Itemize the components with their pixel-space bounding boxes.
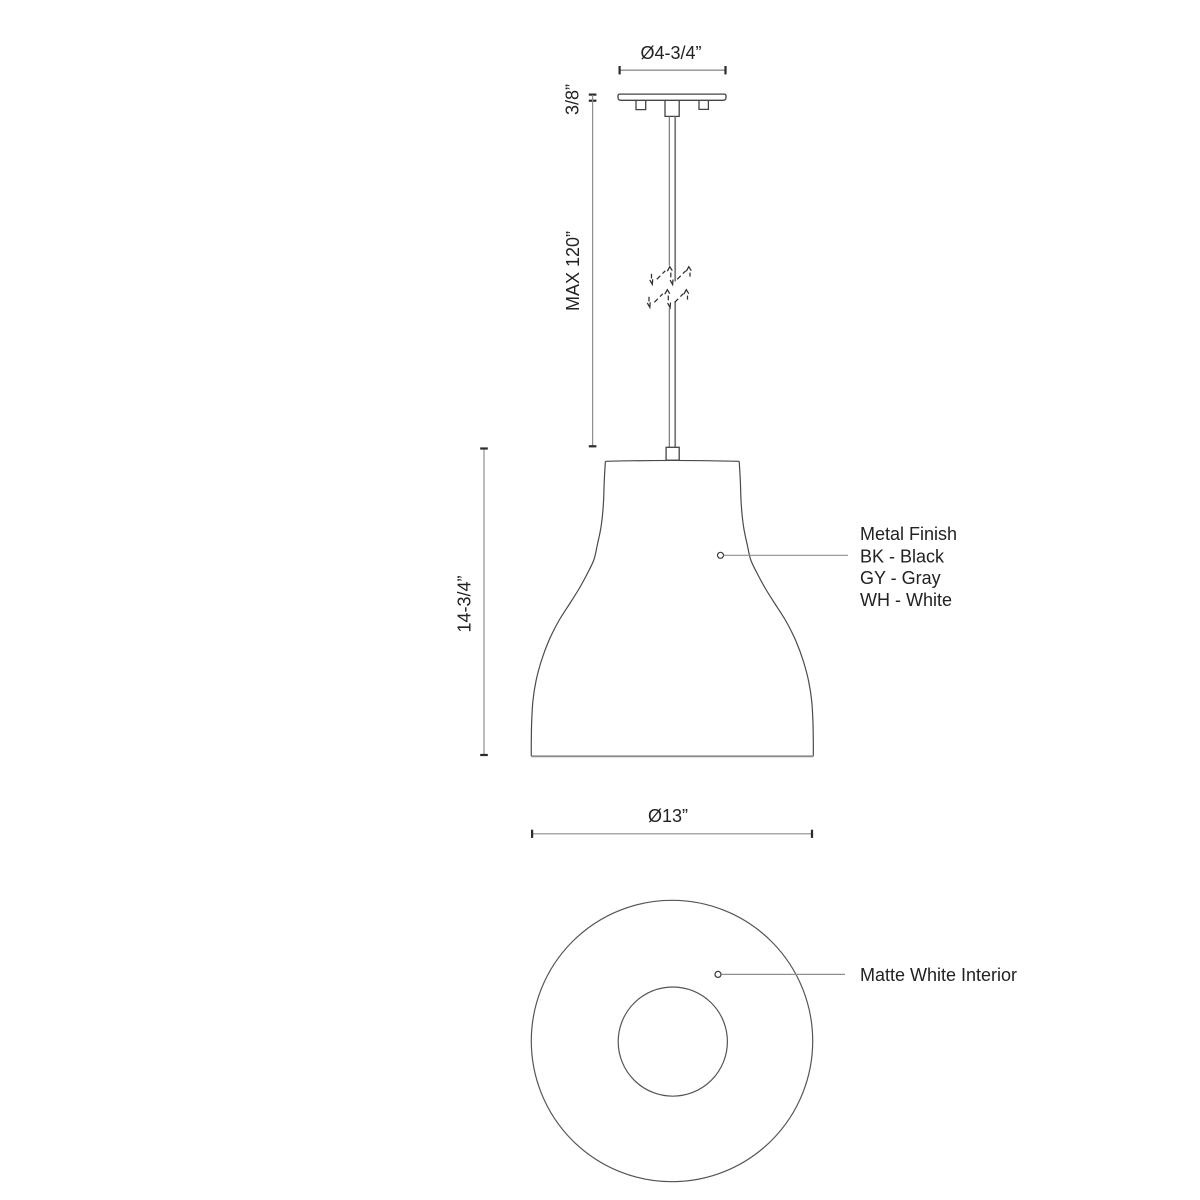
svg-text:Ø13”: Ø13” [648,806,688,826]
svg-text:Ø4-3/4”: Ø4-3/4” [640,43,701,63]
svg-text:14-3/4”: 14-3/4” [455,575,475,632]
svg-text:Matte White Interior: Matte White Interior [860,965,1017,985]
svg-text:Metal Finish: Metal Finish [860,524,957,544]
svg-text:3/8”: 3/8” [563,84,583,115]
svg-text:GY - Gray: GY - Gray [860,568,941,588]
svg-text:WH - White: WH - White [860,590,952,610]
svg-text:MAX 120”: MAX 120” [563,231,583,311]
svg-text:BK - Black: BK - Black [860,546,945,566]
